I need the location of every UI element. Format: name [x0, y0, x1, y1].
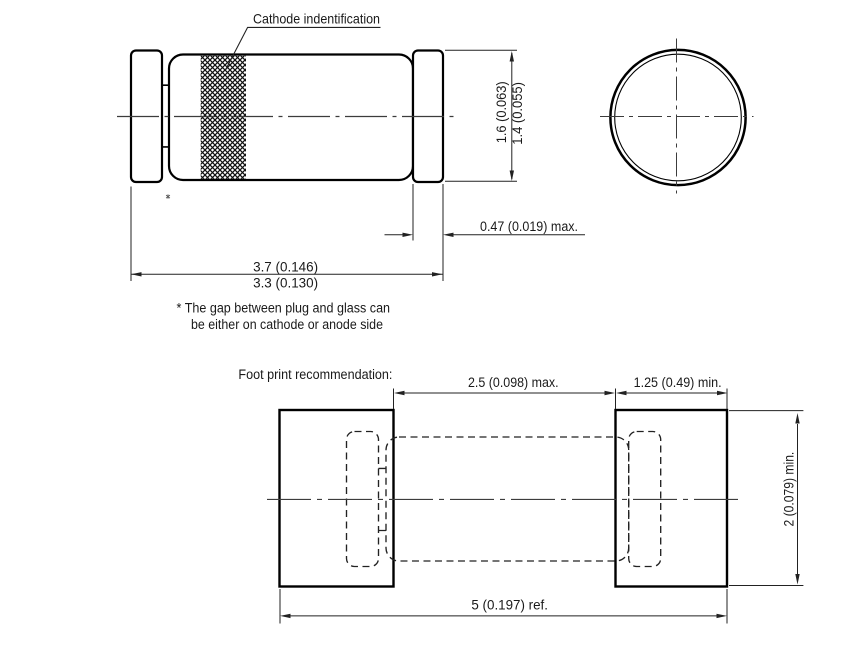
svg-text:5 (0.197) ref.: 5 (0.197) ref.	[471, 598, 548, 613]
svg-text:1.4 (0.055): 1.4 (0.055)	[510, 82, 525, 145]
svg-text:3.3 (0.130): 3.3 (0.130)	[253, 276, 318, 291]
svg-text:Foot print recommendation:: Foot print recommendation:	[238, 367, 392, 382]
svg-text:2 (0.079) min.: 2 (0.079) min.	[782, 452, 797, 527]
svg-text:be either on cathode or anode: be either on cathode or anode side	[191, 317, 383, 332]
svg-text:0.47 (0.019) max.: 0.47 (0.019) max.	[480, 219, 578, 234]
svg-text:1.6 (0.063): 1.6 (0.063)	[494, 81, 509, 143]
svg-text:3.7 (0.146): 3.7 (0.146)	[253, 259, 318, 274]
svg-text:2.5 (0.098) max.: 2.5 (0.098) max.	[468, 375, 559, 390]
svg-text:* The gap between plug and gla: * The gap between plug and glass can	[177, 300, 391, 315]
svg-text:1.25 (0.49) min.: 1.25 (0.49) min.	[634, 375, 722, 390]
svg-text:Cathode indentification: Cathode indentification	[253, 11, 380, 27]
